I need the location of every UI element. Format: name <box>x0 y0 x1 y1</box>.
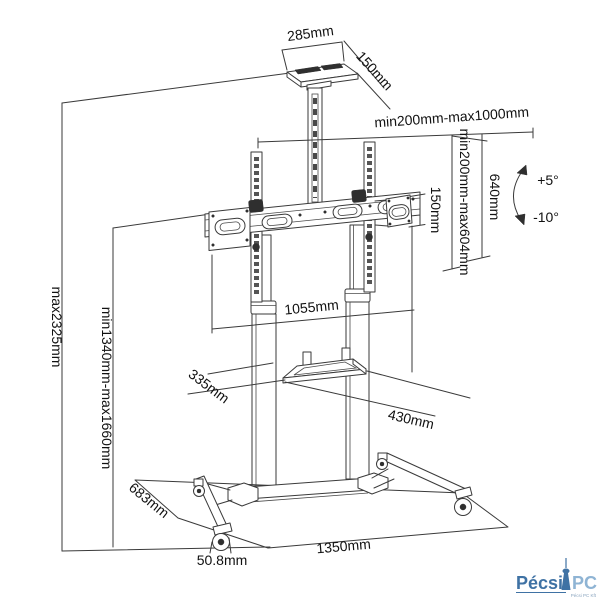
pecsipc-logo: Pécsi PC Pécsi PC Kft <box>516 558 597 598</box>
dim-tv-mount-width-range: min200mm-max1000mm <box>258 104 533 148</box>
dim-caster-diameter-label: 50.8mm <box>197 552 248 568</box>
top-shelf-assembly <box>287 64 358 209</box>
bar-slot-3 <box>332 203 362 219</box>
right-column-upper <box>350 225 365 291</box>
right-leg <box>383 453 466 496</box>
tilt-down-label: -10° <box>533 209 559 225</box>
dim-vesa-height-range-label: min200mm-max604mm <box>457 128 473 275</box>
right-hanger-hook <box>351 189 366 202</box>
dim-shelf-depth-label: 150mm <box>353 48 396 93</box>
dim-tray-width-label: 430mm <box>387 406 436 432</box>
left-hub <box>228 483 258 506</box>
dim-tray-depth-label: 335mm <box>186 366 233 407</box>
dim-side-plate-height-label: 150mm <box>428 187 444 234</box>
front-left-caster <box>213 523 233 551</box>
bar-slot-2 <box>261 213 292 229</box>
left-lock-knob <box>253 244 260 251</box>
back-right-caster <box>377 453 388 470</box>
dim-vesa-height-range: min200mm-max604mm <box>443 128 473 275</box>
tv-stand-technical-drawing: max2325mm min1340mm-max1660mm 285mm 150m… <box>0 0 600 600</box>
dim-overall-height-label: max2325mm <box>49 287 65 368</box>
bar-slot-1 <box>214 217 245 235</box>
dim-mount-height-range-label: min1340mm-max1660mm <box>99 307 115 470</box>
dim-bracket-height-label: 640mm <box>487 174 503 221</box>
left-hanger-hook <box>248 199 263 212</box>
dim-base-depth: 683mm <box>126 479 172 521</box>
tv-stand-drawing-page: max2325mm min1340mm-max1660mm 285mm 150m… <box>0 0 600 600</box>
tilt-arrow-up <box>517 165 527 175</box>
base-assembly <box>135 453 508 551</box>
dim-base-width: 1350mm <box>316 536 372 557</box>
left-column-collar <box>251 301 276 314</box>
logo-primary-text: Pécsi <box>516 573 563 593</box>
dim-tv-mount-width-range-label: min200mm-max1000mm <box>374 104 530 131</box>
dim-base-width-label: 1350mm <box>316 536 372 557</box>
logo-secondary-text: PC <box>572 573 597 593</box>
dim-shelf-width-label: 285mm <box>286 22 334 44</box>
tilt-up-label: +5° <box>537 172 559 188</box>
dim-shelf-width: 285mm <box>282 22 344 70</box>
tilt-arrow-down <box>515 214 525 225</box>
right-lock-knob <box>366 234 373 241</box>
right-column-lower <box>346 302 369 479</box>
dim-base-depth-label: 683mm <box>126 479 172 521</box>
logo-tagline: Pécsi PC Kft <box>571 593 597 598</box>
tilt-annotation: +5° -10° <box>513 165 558 225</box>
front-right-caster <box>455 487 473 516</box>
back-left-caster <box>194 479 205 497</box>
dim-bar-length: 1055mm <box>212 226 414 372</box>
dim-bar-length-label: 1055mm <box>284 296 340 317</box>
